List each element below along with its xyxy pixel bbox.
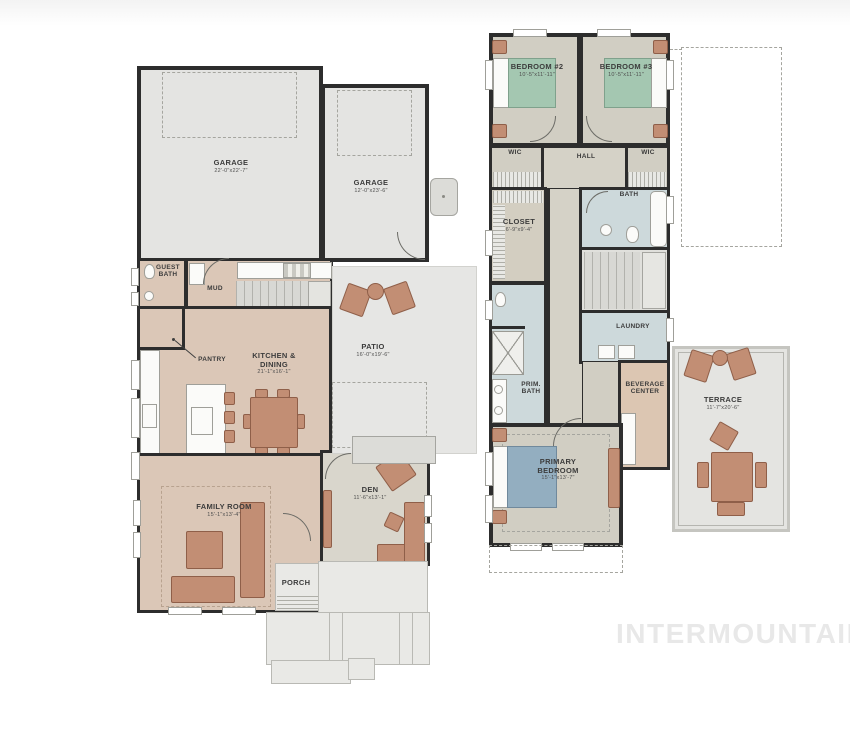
- bedroom3-label: BEDROOM #3 10'-5"x11'-11": [600, 63, 653, 78]
- window: [666, 60, 674, 90]
- bathtub: [650, 191, 667, 247]
- family-sofa: [171, 576, 235, 603]
- island-stool: [224, 430, 235, 443]
- window: [485, 230, 493, 256]
- bath-sink: [600, 224, 612, 236]
- patio-bench: [352, 436, 436, 464]
- window: [168, 607, 202, 615]
- closet-label: CLOSET 6'-9"x9'-4": [503, 218, 535, 233]
- prim-bath-wall: [489, 326, 525, 329]
- kitchen-sink: [142, 404, 157, 428]
- porch-post-right: [399, 612, 413, 665]
- window: [131, 398, 140, 438]
- primary-bed-pillows: [493, 446, 508, 508]
- garage-main-bay-outline: [162, 72, 297, 138]
- range-cooktop: [283, 263, 311, 278]
- garage-single-bay-outline: [337, 90, 412, 156]
- nightstand: [653, 124, 668, 138]
- porch-step-box: [348, 658, 375, 680]
- window: [131, 360, 140, 390]
- window: [485, 452, 493, 486]
- pantry-label: PANTRY: [198, 356, 226, 363]
- patio-label: PATIO 16'-0"x19'-6": [356, 343, 389, 358]
- mud-label: MUD: [207, 285, 223, 292]
- dining-chair: [243, 414, 251, 429]
- guest-bath-sink: [144, 291, 154, 301]
- stairs-landing-2: [642, 252, 666, 309]
- window: [131, 268, 139, 286]
- prim-bath-sink: [494, 406, 503, 415]
- window: [424, 495, 432, 517]
- garage-single-label: GARAGE 12'-0"x23'-6": [354, 179, 389, 194]
- window: [485, 300, 493, 320]
- bed3-pillows: [651, 58, 667, 108]
- wic-left-label: WIC: [508, 149, 522, 156]
- wic-left-racks: [493, 172, 541, 187]
- guest-bath-label: GUEST BATH: [151, 264, 185, 279]
- primary-dresser: [608, 448, 620, 508]
- roof-outline-connector: [670, 49, 682, 50]
- terrace-label: TERRACE 11'-7"x20'-6": [704, 396, 742, 411]
- family-room-label: FAMILY ROOM 15'-1"x13'-4": [196, 503, 251, 518]
- nightstand: [492, 124, 507, 138]
- bath-label: BATH: [620, 191, 639, 198]
- window: [424, 523, 432, 543]
- dining-chair: [255, 389, 268, 398]
- bath-toilet: [626, 226, 639, 243]
- window: [222, 607, 256, 615]
- primary-bedroom-label: PRIMARY BEDROOM 15'-1"x13'-7": [530, 458, 586, 482]
- kitchen-dining-label: KITCHEN & DINING 21'-1"x16'-1": [248, 352, 300, 376]
- roof-outline-right: [681, 47, 782, 247]
- porch-deck-main: [318, 561, 428, 615]
- dining-chair: [277, 389, 290, 398]
- nightstand: [653, 40, 668, 54]
- bedroom-entry-floor: [583, 362, 623, 426]
- dining-table: [250, 397, 298, 448]
- bed2-pillows: [493, 58, 509, 108]
- floor-plan-sheet: GARAGE 22'-0"x22'-7" GARAGE 12'-0"x23'-6…: [0, 0, 850, 741]
- island-cooktop: [191, 407, 213, 435]
- window: [133, 500, 141, 526]
- dryer: [618, 345, 635, 359]
- island-stool: [224, 411, 235, 424]
- window: [666, 318, 674, 342]
- washer: [598, 345, 615, 359]
- beverage-center-label: BEVERAGE CENTER: [621, 381, 669, 396]
- porch-post-left: [329, 612, 343, 665]
- room-hall: [541, 145, 629, 191]
- window: [485, 495, 493, 523]
- window: [485, 60, 493, 90]
- den-label: DEN 11'-6"x13'-1": [354, 486, 387, 501]
- patio-side-table: [367, 283, 384, 300]
- bedroom2-label: BEDROOM #2 10'-5"x11'-11": [511, 63, 564, 78]
- terrace-chair: [697, 462, 709, 488]
- terrace-side-table: [712, 350, 728, 366]
- prim-bath-toilet: [495, 292, 506, 307]
- stairs-second-floor: [584, 252, 640, 309]
- utility-pad-mark: [442, 195, 445, 198]
- laundry-label: LAUNDRY: [616, 323, 650, 330]
- prim-bath-shower: [492, 331, 524, 375]
- wic-right-label: WIC: [641, 149, 655, 156]
- dining-chair: [297, 414, 305, 429]
- prim-bath-label: PRIM. BATH: [515, 381, 547, 396]
- closet-racks-top: [493, 191, 543, 203]
- porch-step-bottom: [271, 660, 351, 684]
- nightstand: [492, 428, 507, 442]
- terrace-chair: [717, 502, 745, 516]
- hall-label: HALL: [577, 153, 596, 160]
- window: [513, 29, 547, 37]
- window: [133, 532, 141, 558]
- window: [131, 452, 140, 480]
- terrace-chair: [755, 462, 767, 488]
- coffee-ottoman: [186, 531, 223, 569]
- builder-watermark: INTERMOUNTAIN: [616, 618, 850, 650]
- den-console: [323, 490, 332, 548]
- garage-main-label: GARAGE 22'-0"x22'-7": [214, 159, 249, 174]
- wic-right-racks: [628, 172, 666, 187]
- roof-outline-below: [489, 545, 623, 573]
- porch-deck-hatch: [277, 594, 319, 609]
- prim-bath-sink: [494, 385, 503, 394]
- window: [666, 196, 674, 224]
- nightstand: [492, 510, 507, 524]
- page-top-fade: [0, 0, 850, 26]
- porch-label: PORCH: [282, 579, 311, 588]
- window: [597, 29, 631, 37]
- island-stool: [224, 392, 235, 405]
- window: [131, 292, 139, 306]
- den-sofa-vertical: [404, 502, 425, 564]
- nightstand: [492, 40, 507, 54]
- beverage-counter: [621, 413, 636, 465]
- terrace-dining-table: [711, 452, 753, 502]
